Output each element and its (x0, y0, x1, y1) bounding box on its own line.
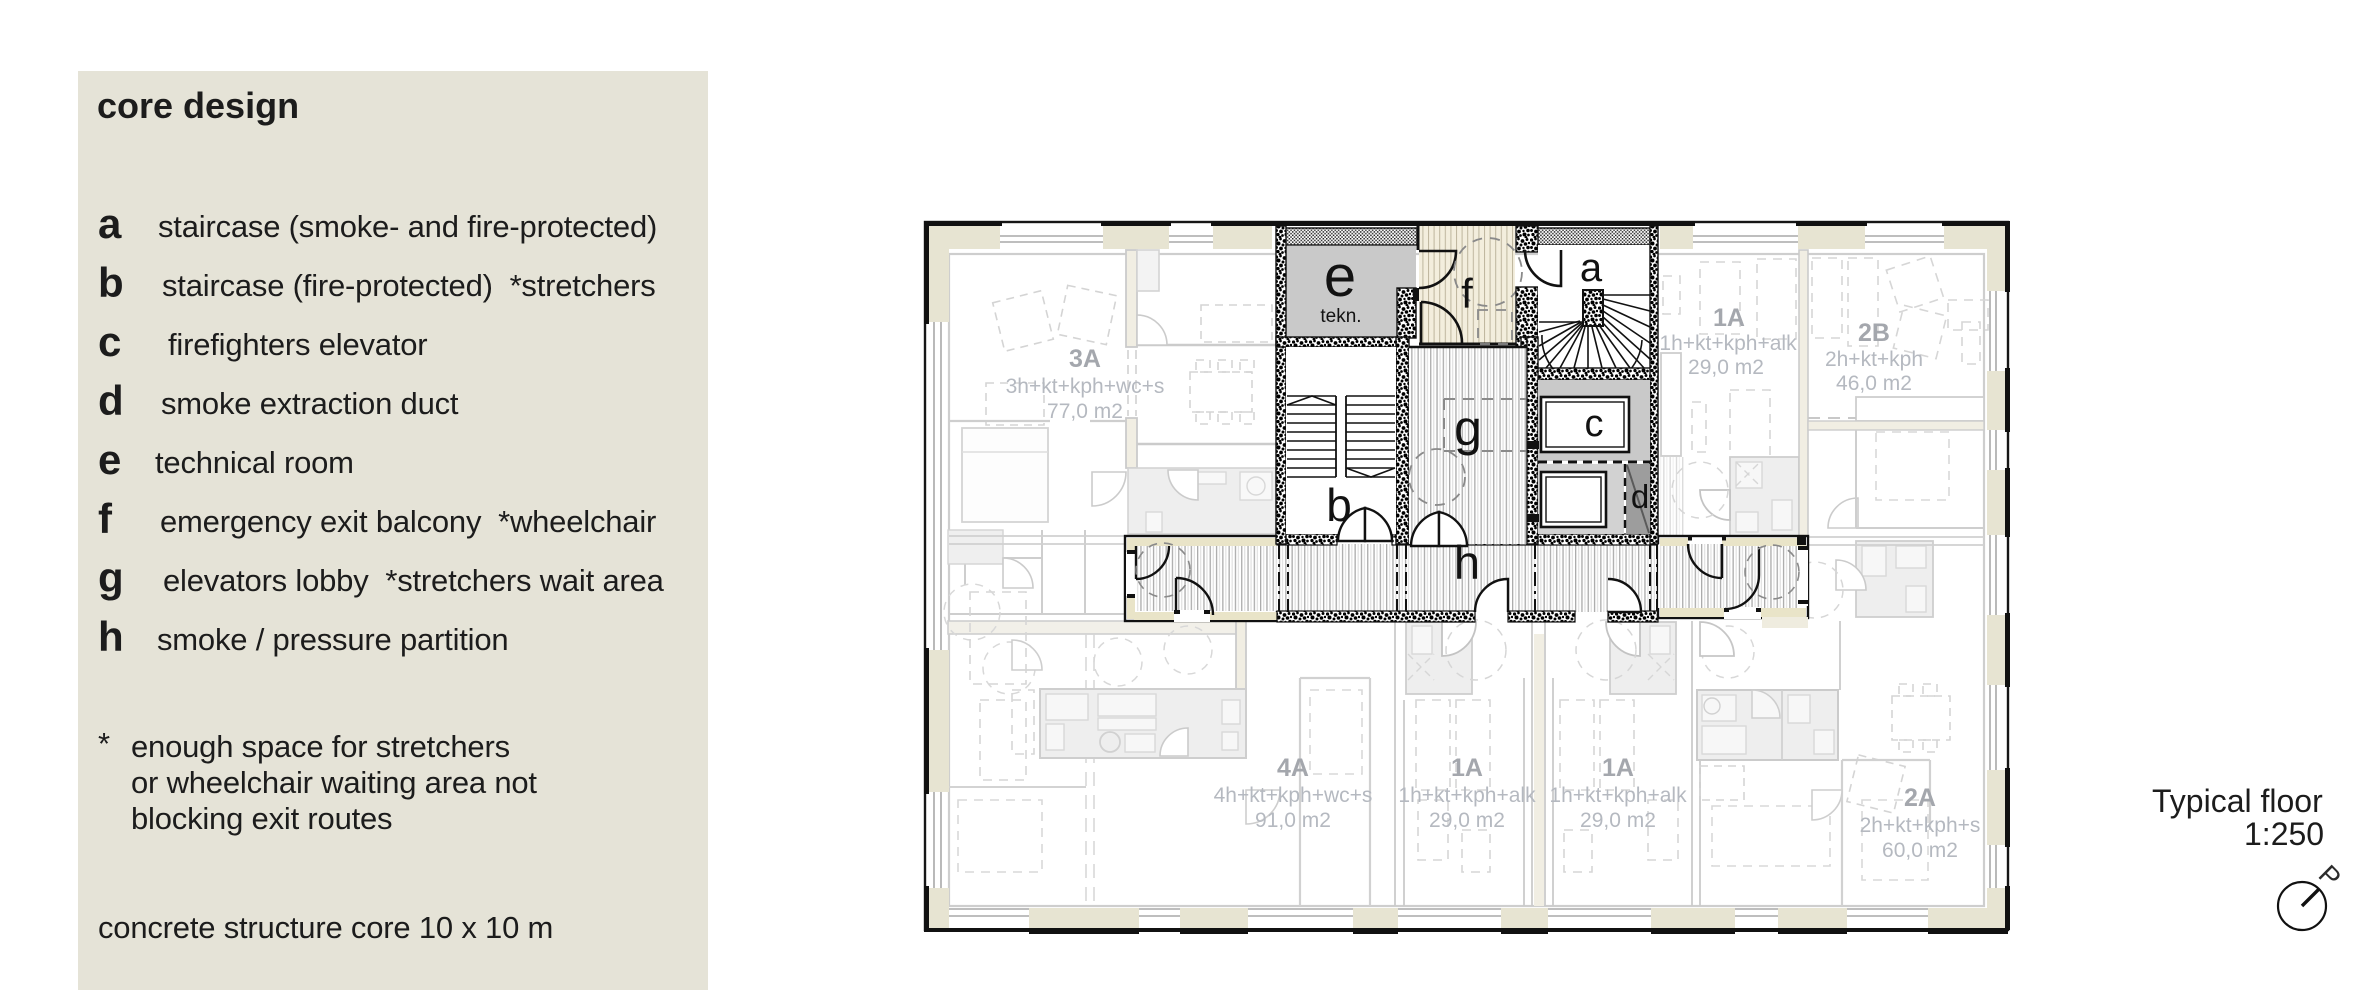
svg-text:1A: 1A (1451, 754, 1483, 782)
svg-text:46,0 m2: 46,0 m2 (1836, 372, 1912, 395)
svg-text:b: b (1326, 479, 1352, 531)
svg-text:1h+kt+kph+alk: 1h+kt+kph+alk (1659, 332, 1797, 355)
svg-text:4A: 4A (1277, 754, 1309, 782)
svg-text:1A: 1A (1713, 304, 1745, 332)
svg-text:2B: 2B (1858, 319, 1890, 347)
svg-text:h: h (1454, 536, 1480, 589)
svg-text:c: c (1585, 403, 1604, 445)
svg-text:1h+kt+kph+alk: 1h+kt+kph+alk (1398, 784, 1536, 807)
svg-text:60,0 m2: 60,0 m2 (1882, 839, 1958, 862)
svg-text:2h+kt+kph+s: 2h+kt+kph+s (1860, 814, 1981, 837)
svg-text:3h+kt+kph+wc+s: 3h+kt+kph+wc+s (1006, 375, 1165, 398)
svg-text:29,0 m2: 29,0 m2 (1688, 356, 1764, 379)
svg-text:3A: 3A (1069, 345, 1101, 373)
svg-text:1A: 1A (1602, 754, 1634, 782)
svg-text:4h+kt+kph+wc+s: 4h+kt+kph+wc+s (1214, 784, 1373, 807)
svg-text:2h+kt+kph: 2h+kt+kph (1825, 348, 1923, 371)
svg-text:29,0 m2: 29,0 m2 (1580, 809, 1656, 832)
svg-text:g: g (1454, 400, 1482, 456)
svg-text:1h+kt+kph+alk: 1h+kt+kph+alk (1549, 784, 1687, 807)
svg-text:2A: 2A (1904, 784, 1936, 812)
svg-text:tekn.: tekn. (1320, 306, 1361, 327)
svg-text:e: e (1324, 244, 1356, 309)
svg-text:d: d (1631, 478, 1649, 515)
svg-text:91,0 m2: 91,0 m2 (1255, 809, 1331, 832)
svg-text:29,0 m2: 29,0 m2 (1429, 809, 1505, 832)
svg-text:77,0 m2: 77,0 m2 (1047, 400, 1123, 423)
svg-text:f: f (1461, 270, 1473, 317)
svg-text:a: a (1580, 246, 1603, 290)
